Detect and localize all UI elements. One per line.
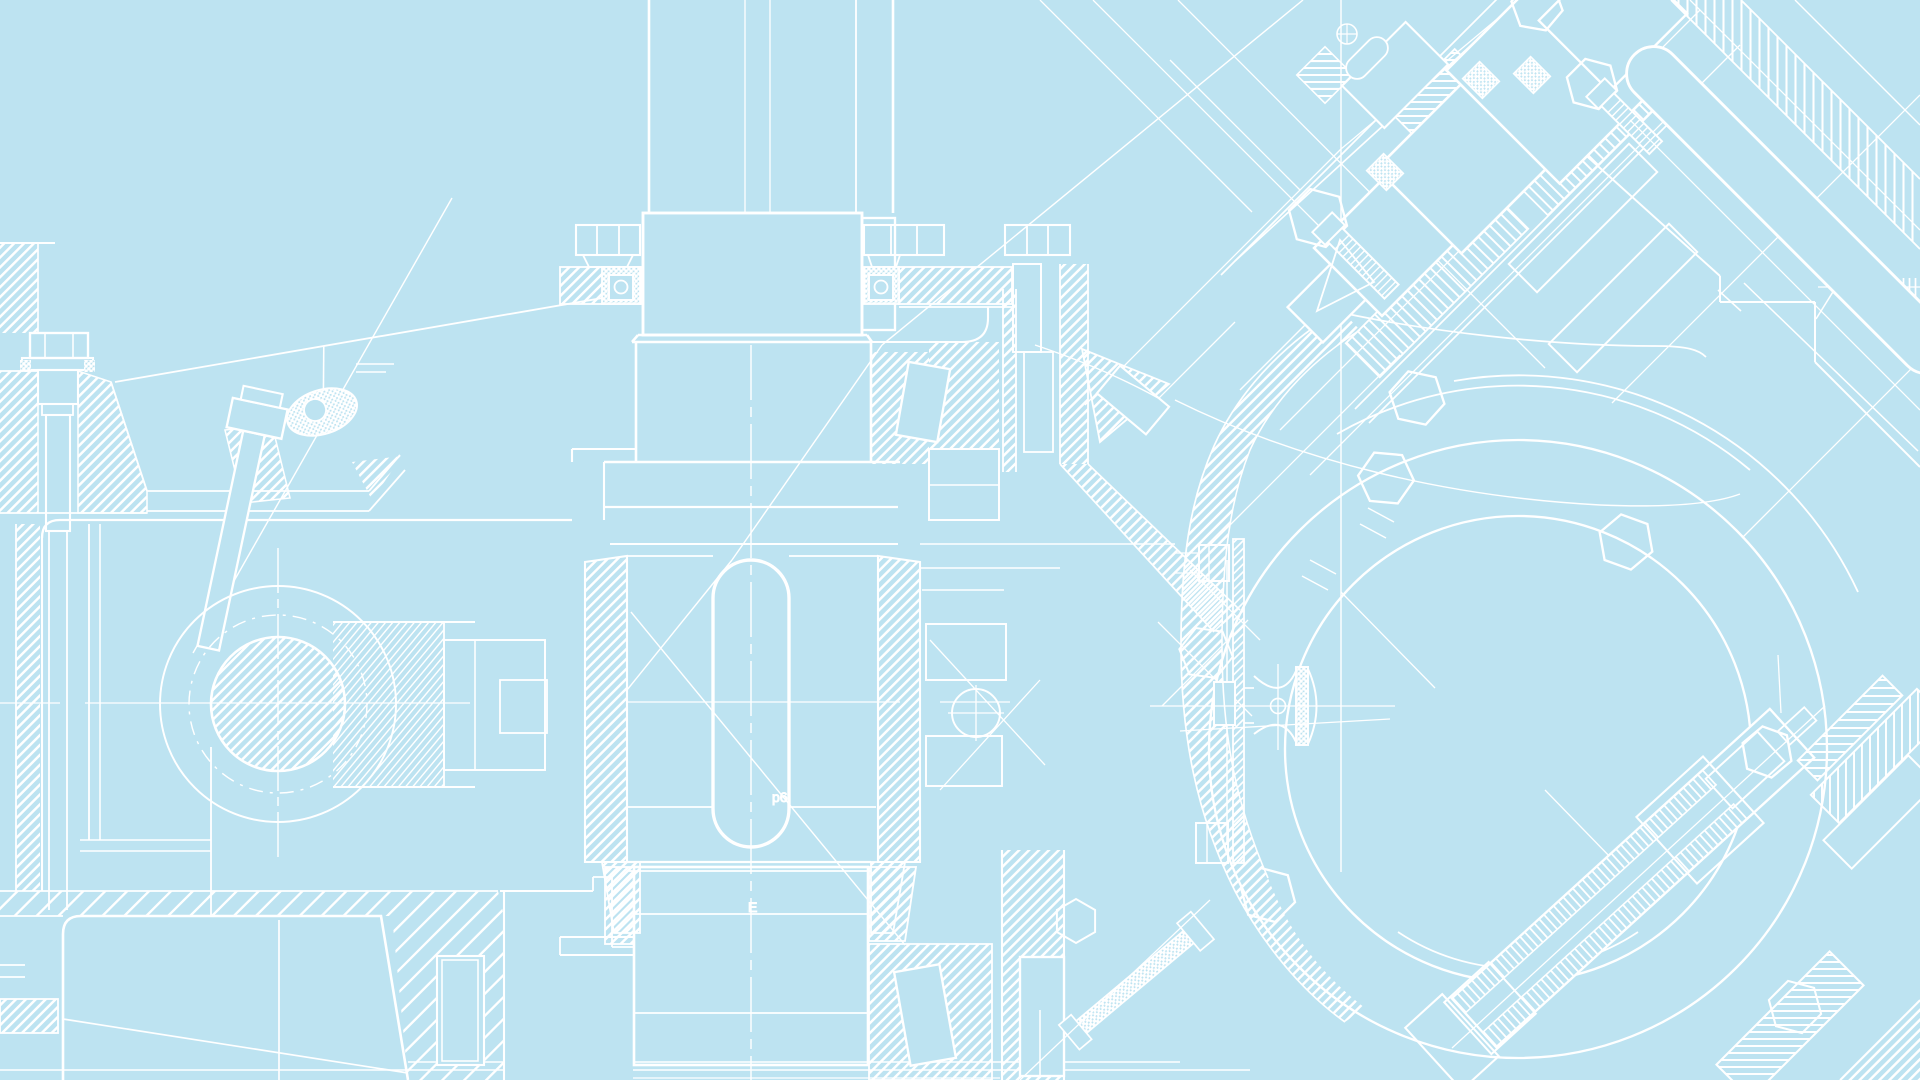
svg-text:E: E	[748, 899, 757, 915]
svg-text:p6: p6	[772, 789, 788, 805]
